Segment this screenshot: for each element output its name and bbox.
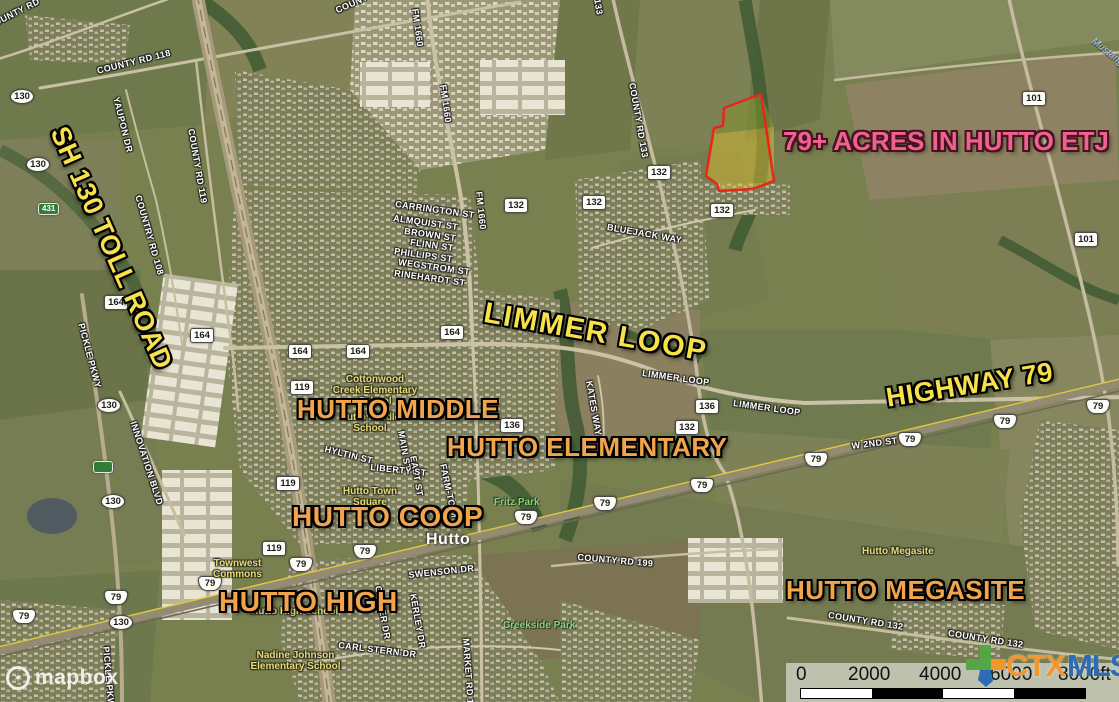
park-label: Fritz Park <box>494 497 540 508</box>
route-shield: 79 <box>804 452 828 467</box>
map-canvas[interactable]: COUNTY RD 118 YAUPON DR COUNTY RD 119 CO… <box>0 0 1119 702</box>
route-shield: 431 <box>38 203 59 215</box>
route-shield: 136 <box>500 418 524 433</box>
scale-tick: 4000 <box>919 664 961 686</box>
route-shield: 101 <box>1074 232 1098 247</box>
route-shield: 79 <box>353 544 377 559</box>
city-label: Hutto <box>426 531 470 549</box>
route-shield: 79 <box>12 609 36 624</box>
route-shield: 130 <box>10 89 34 104</box>
route-shield: 164 <box>346 344 370 359</box>
route-shield <box>93 461 113 473</box>
route-shield: 130 <box>101 494 125 509</box>
mapbox-logo[interactable]: ✶ mapbox <box>6 666 119 690</box>
route-shield: 164 <box>288 344 312 359</box>
scale-bar-segments <box>800 688 1086 699</box>
annotation-hutto-coop: HUTTO COOP <box>292 501 483 533</box>
route-shield: 136 <box>695 399 719 414</box>
ctxmls-logo: CTX MLS <box>966 643 1119 689</box>
route-shield: 132 <box>582 195 606 210</box>
route-shield: 79 <box>993 414 1017 429</box>
place-label: Nadine Johnson Elementary School <box>248 650 343 672</box>
place-label: Townwest Commons <box>200 558 275 580</box>
route-shield: 119 <box>290 380 314 395</box>
road-label: 133 <box>592 0 605 16</box>
annotation-hutto-middle: HUTTO MIDDLE <box>297 394 499 425</box>
scale-tick: 2000 <box>848 664 890 686</box>
route-shield: 79 <box>104 590 128 605</box>
route-shield: 130 <box>26 157 50 172</box>
route-shield: 79 <box>289 557 313 572</box>
route-shield: 79 <box>898 432 922 447</box>
mls-wordmark: MLS <box>1067 648 1119 684</box>
route-shield: 132 <box>710 203 734 218</box>
annotation-hutto-high: HUTTO HIGH <box>219 586 398 618</box>
texas-plus-icon <box>966 645 1006 687</box>
route-shield: 164 <box>440 325 464 340</box>
route-shield: 119 <box>276 476 300 491</box>
route-shield: 101 <box>1022 91 1046 106</box>
route-shield: 130 <box>97 398 121 413</box>
route-shield: 130 <box>109 615 133 630</box>
headline-acreage: 79+ ACRES IN HUTTO ETJ <box>783 126 1109 157</box>
ctx-wordmark: CTX <box>1006 648 1065 684</box>
route-shield: 119 <box>262 541 286 556</box>
mapbox-wordmark: mapbox <box>35 666 119 690</box>
route-shield: 164 <box>190 328 214 343</box>
route-shield: 79 <box>1086 399 1110 414</box>
route-shield: 79 <box>690 478 714 493</box>
route-shield: 79 <box>593 496 617 511</box>
route-shield: 132 <box>504 198 528 213</box>
annotation-hutto-elementary: HUTTO ELEMENTARY <box>447 432 728 463</box>
route-shield: 132 <box>647 165 671 180</box>
mapbox-icon: ✶ <box>6 666 30 690</box>
place-label: Hutto Megasite <box>862 546 934 557</box>
annotation-hutto-megasite: HUTTO MEGASITE <box>786 575 1025 606</box>
scale-tick: 0 <box>796 664 807 686</box>
park-label: Creekside Park <box>503 620 575 631</box>
route-shield: 79 <box>514 510 538 525</box>
